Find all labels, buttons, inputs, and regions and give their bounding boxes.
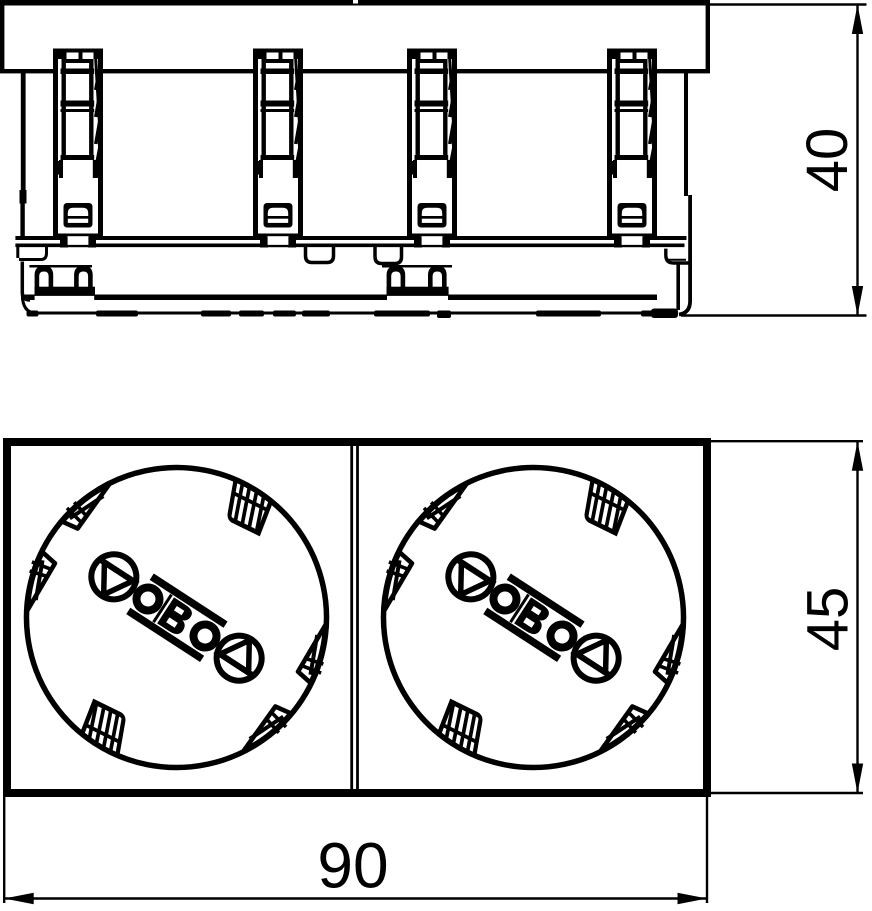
svg-text:40: 40 <box>795 128 860 193</box>
svg-text:90: 90 <box>317 830 388 902</box>
svg-text:45: 45 <box>796 587 861 652</box>
